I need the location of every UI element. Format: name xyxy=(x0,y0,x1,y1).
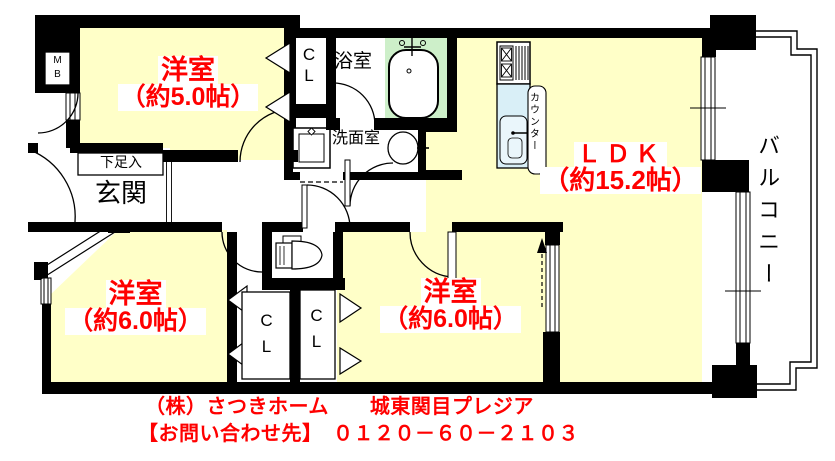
closet-right-line2: L xyxy=(304,329,329,355)
western3-room-size: （約6.0帖） xyxy=(380,306,521,332)
toilet-door-leaf xyxy=(302,185,307,228)
closet-top-line1: C xyxy=(296,44,322,65)
bathroom-label: 浴室 xyxy=(334,52,372,72)
closet-top-line2: L xyxy=(296,65,322,86)
balcony-label: バルコニー xyxy=(756,134,779,294)
western1-room-size: （約5.0帖） xyxy=(118,84,259,110)
closet-right-line1: C xyxy=(304,303,329,329)
washroom-label: 洗面室 xyxy=(332,131,380,148)
meter-box-line1: M xyxy=(45,54,70,68)
western3-door-leaf xyxy=(448,232,456,279)
ldk-room-label: ＬＤＫ （約15.2帖） xyxy=(523,142,718,194)
footer-company-property: （株）さつきホーム 城東関目プレジア xyxy=(145,397,534,418)
meter-box-label: M B xyxy=(45,54,70,81)
closet-right-label: C L xyxy=(304,303,329,354)
meter-box-line2: B xyxy=(45,68,70,82)
ldk-notch-floor xyxy=(426,132,452,232)
closet-left-label: C L xyxy=(254,308,279,359)
closet-top-label: C L xyxy=(296,44,322,87)
western1-room-label: 洋室 （約5.0帖） xyxy=(93,56,283,111)
ldk-room-name: ＬＤＫ xyxy=(574,142,667,167)
western1-room-name: 洋室 xyxy=(158,56,218,84)
footer-contact: 【お問い合わせ先】 ０１２０－６０－２１０３ xyxy=(138,424,579,445)
ldk-room-size: （約15.2帖） xyxy=(540,167,701,194)
washing-machine-pan-icon xyxy=(293,128,330,168)
floorplan-image: 洋室 （約5.0帖） ＬＤＫ （約15.2帖） 洋室 （約6.0帖） 洋室 （約… xyxy=(0,0,835,461)
stove-icon xyxy=(497,42,530,84)
ldk-door-leaf xyxy=(345,160,350,206)
closet-left-line1: C xyxy=(254,308,279,334)
closet-left-line2: L xyxy=(254,334,279,360)
western2-room-size: （約6.0帖） xyxy=(65,308,206,334)
counter-label: カウンター xyxy=(527,92,538,152)
entrance-label: 玄関 xyxy=(80,180,162,207)
western2-room-label: 洋室 （約6.0帖） xyxy=(38,280,233,335)
western3-room-label: 洋室 （約6.0帖） xyxy=(353,278,548,333)
western3-room-name: 洋室 xyxy=(421,278,481,306)
shoe-box-label: 下足入 xyxy=(80,155,162,170)
western2-room-name: 洋室 xyxy=(106,280,166,308)
